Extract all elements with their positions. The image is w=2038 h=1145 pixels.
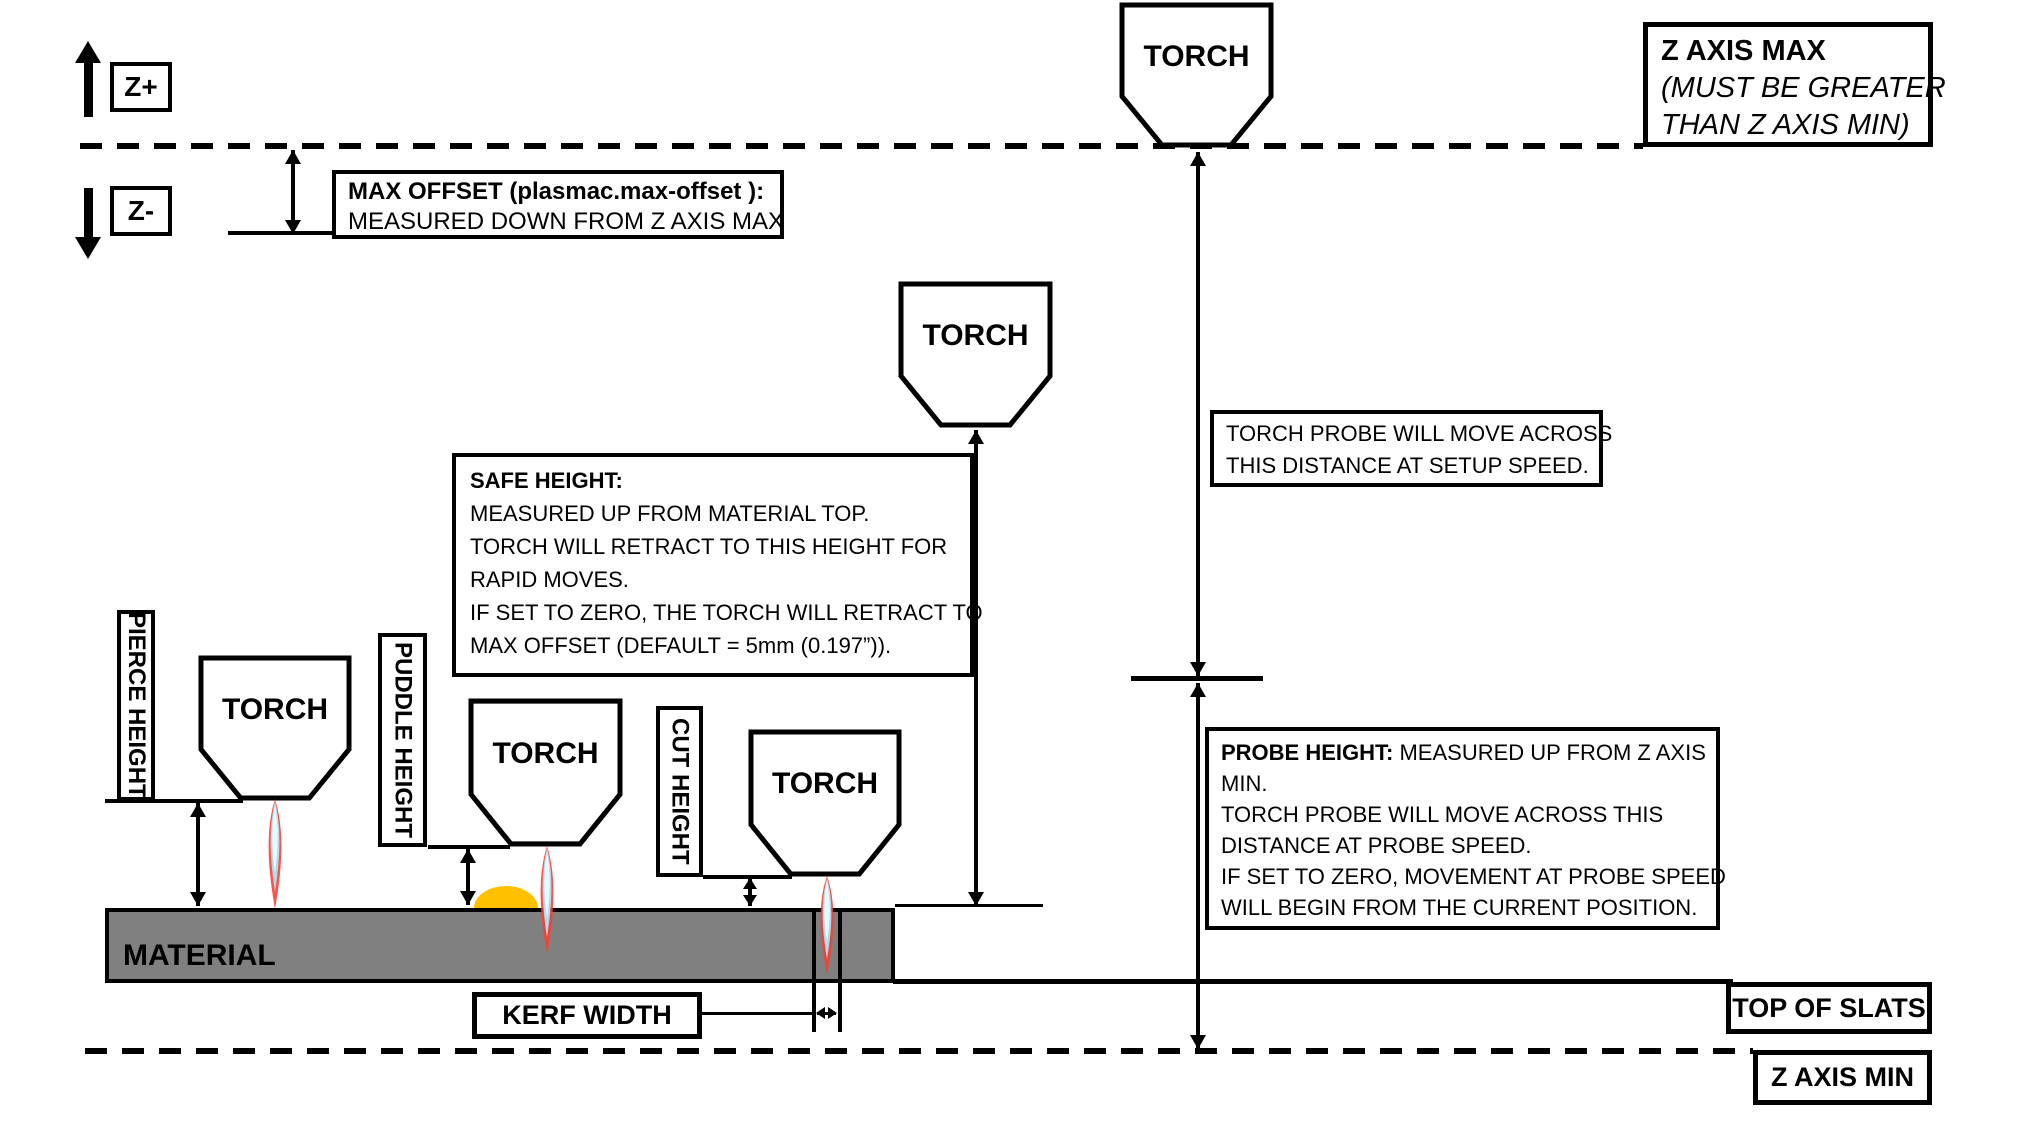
z-minus-box: Z- (110, 186, 172, 236)
torch-safe-height: TORCH (898, 281, 1053, 428)
setup-speed-distance-arrow (1196, 152, 1200, 676)
max-offset-title: MAX OFFSET (plasmac.max-offset ): (348, 177, 768, 207)
probe-height-line5: IF SET TO ZERO, MOVEMENT AT PROBE SPEED (1221, 861, 1704, 892)
cut-height-arrow (748, 878, 752, 906)
probe-height-callout: PROBE HEIGHT: MEASURED UP FROM Z AXIS MI… (1205, 727, 1720, 930)
probe-height-line2: MIN. (1221, 768, 1704, 799)
kerf-width-arrow (817, 1012, 836, 1015)
torch-label: TORCH (748, 767, 902, 801)
pierce-height-text: PIERCE HEIGHT (122, 612, 150, 799)
probe-speed-distance-arrow (1196, 683, 1200, 1049)
z-minus-arrow-icon (84, 188, 93, 238)
plasmac-height-diagram: Z+ Z- MAX OFFSET (plasmac.max-offset ): … (0, 0, 2038, 1145)
torch-cut: TORCH (748, 729, 902, 877)
top-of-slats-box: TOP OF SLATS (1726, 982, 1932, 1034)
material-bar: MATERIAL (105, 908, 895, 983)
safe-height-line5: IF SET TO ZERO, THE TORCH WILL RETRACT T… (470, 596, 956, 629)
torch-body-shape (1119, 2, 1274, 148)
torch-puddle: TORCH (468, 698, 623, 847)
z-minus-label: Z- (128, 195, 154, 227)
probe-height-line3: TORCH PROBE WILL MOVE ACROSS THIS (1221, 799, 1704, 830)
torch-pierce: TORCH (198, 655, 352, 801)
torch-body-shape (198, 655, 352, 801)
weld-puddle (474, 886, 538, 908)
z-axis-max-note-line2: THAN Z AXIS MIN) (1661, 107, 1915, 144)
probe-height-tick (1131, 676, 1263, 681)
z-axis-min-box: Z AXIS MIN (1753, 1050, 1932, 1105)
probe-height-line6: WILL BEGIN FROM THE CURRENT POSITION. (1221, 892, 1704, 923)
torch-body-shape (468, 698, 623, 847)
z-axis-max-dashed-line (80, 143, 1643, 149)
safe-height-title: SAFE HEIGHT: (470, 464, 956, 497)
setup-note-line2: THIS DISTANCE AT SETUP SPEED. (1226, 450, 1587, 482)
top-of-slats-line (893, 979, 1733, 984)
z-plus-box: Z+ (110, 62, 172, 112)
z-axis-max-title: Z AXIS MAX (1661, 33, 1915, 70)
safe-height-line4: RAPID MOVES. (470, 563, 956, 596)
kerf-width-text: KERF WIDTH (502, 1000, 671, 1031)
z-axis-min-dashed-line (85, 1048, 1753, 1054)
torch-body-shape (898, 281, 1053, 428)
z-axis-max-note-line1: (MUST BE GREATER (1661, 70, 1915, 107)
probe-height-line1-rest: MEASURED UP FROM Z AXIS (1393, 740, 1706, 765)
torch-label: TORCH (898, 319, 1053, 353)
torch-label: TORCH (198, 693, 352, 727)
torch-top: TORCH (1119, 2, 1274, 148)
z-axis-max-callout: Z AXIS MAX (MUST BE GREATER THAN Z AXIS … (1643, 22, 1933, 147)
safe-height-line6: MAX OFFSET (DEFAULT = 5mm (0.197”)). (470, 629, 956, 662)
setup-speed-callout: TORCH PROBE WILL MOVE ACROSS THIS DISTAN… (1210, 410, 1603, 487)
max-offset-datum-line (228, 231, 334, 235)
z-plus-arrow-icon (84, 62, 93, 117)
z-plus-label: Z+ (124, 71, 157, 103)
setup-note-line1: TORCH PROBE WILL MOVE ACROSS (1226, 418, 1587, 450)
max-offset-line2: MEASURED DOWN FROM Z AXIS MAX (348, 207, 768, 237)
max-offset-arrow (291, 150, 295, 234)
safe-height-line2: MEASURED UP FROM MATERIAL TOP. (470, 497, 956, 530)
plasma-flame-cut (811, 875, 843, 975)
torch-label: TORCH (468, 737, 623, 771)
probe-height-line4: DISTANCE AT PROBE SPEED. (1221, 830, 1704, 861)
puddle-height-label: PUDDLE HEIGHT (378, 633, 427, 847)
safe-height-arrow (974, 430, 978, 906)
pierce-height-label: PIERCE HEIGHT (117, 610, 155, 801)
kerf-leader-line (702, 1012, 814, 1015)
probe-height-title: PROBE HEIGHT: (1221, 740, 1393, 765)
material-top-extension-line (895, 904, 1043, 907)
puddle-height-arrow (466, 849, 470, 905)
top-of-slats-text: TOP OF SLATS (1732, 993, 1926, 1024)
probe-height-line1: PROBE HEIGHT: MEASURED UP FROM Z AXIS (1221, 737, 1704, 768)
pierce-height-arrow (196, 803, 200, 906)
cut-height-label: CUT HEIGHT (656, 706, 703, 877)
pierce-datum-line (105, 799, 243, 803)
max-offset-callout: MAX OFFSET (plasmac.max-offset ): MEASUR… (332, 170, 784, 239)
cut-height-text: CUT HEIGHT (666, 718, 694, 865)
plasma-flame-pierce (259, 798, 291, 910)
plasma-flame-puddle (531, 845, 563, 955)
puddle-height-text: PUDDLE HEIGHT (389, 642, 417, 838)
z-axis-min-text: Z AXIS MIN (1771, 1062, 1914, 1093)
safe-height-callout: SAFE HEIGHT: MEASURED UP FROM MATERIAL T… (452, 453, 974, 677)
torch-label: TORCH (1119, 40, 1274, 74)
kerf-width-callout: KERF WIDTH (472, 992, 702, 1039)
safe-height-line3: TORCH WILL RETRACT TO THIS HEIGHT FOR (470, 530, 956, 563)
torch-body-shape (748, 729, 902, 877)
material-label: MATERIAL (123, 939, 276, 973)
